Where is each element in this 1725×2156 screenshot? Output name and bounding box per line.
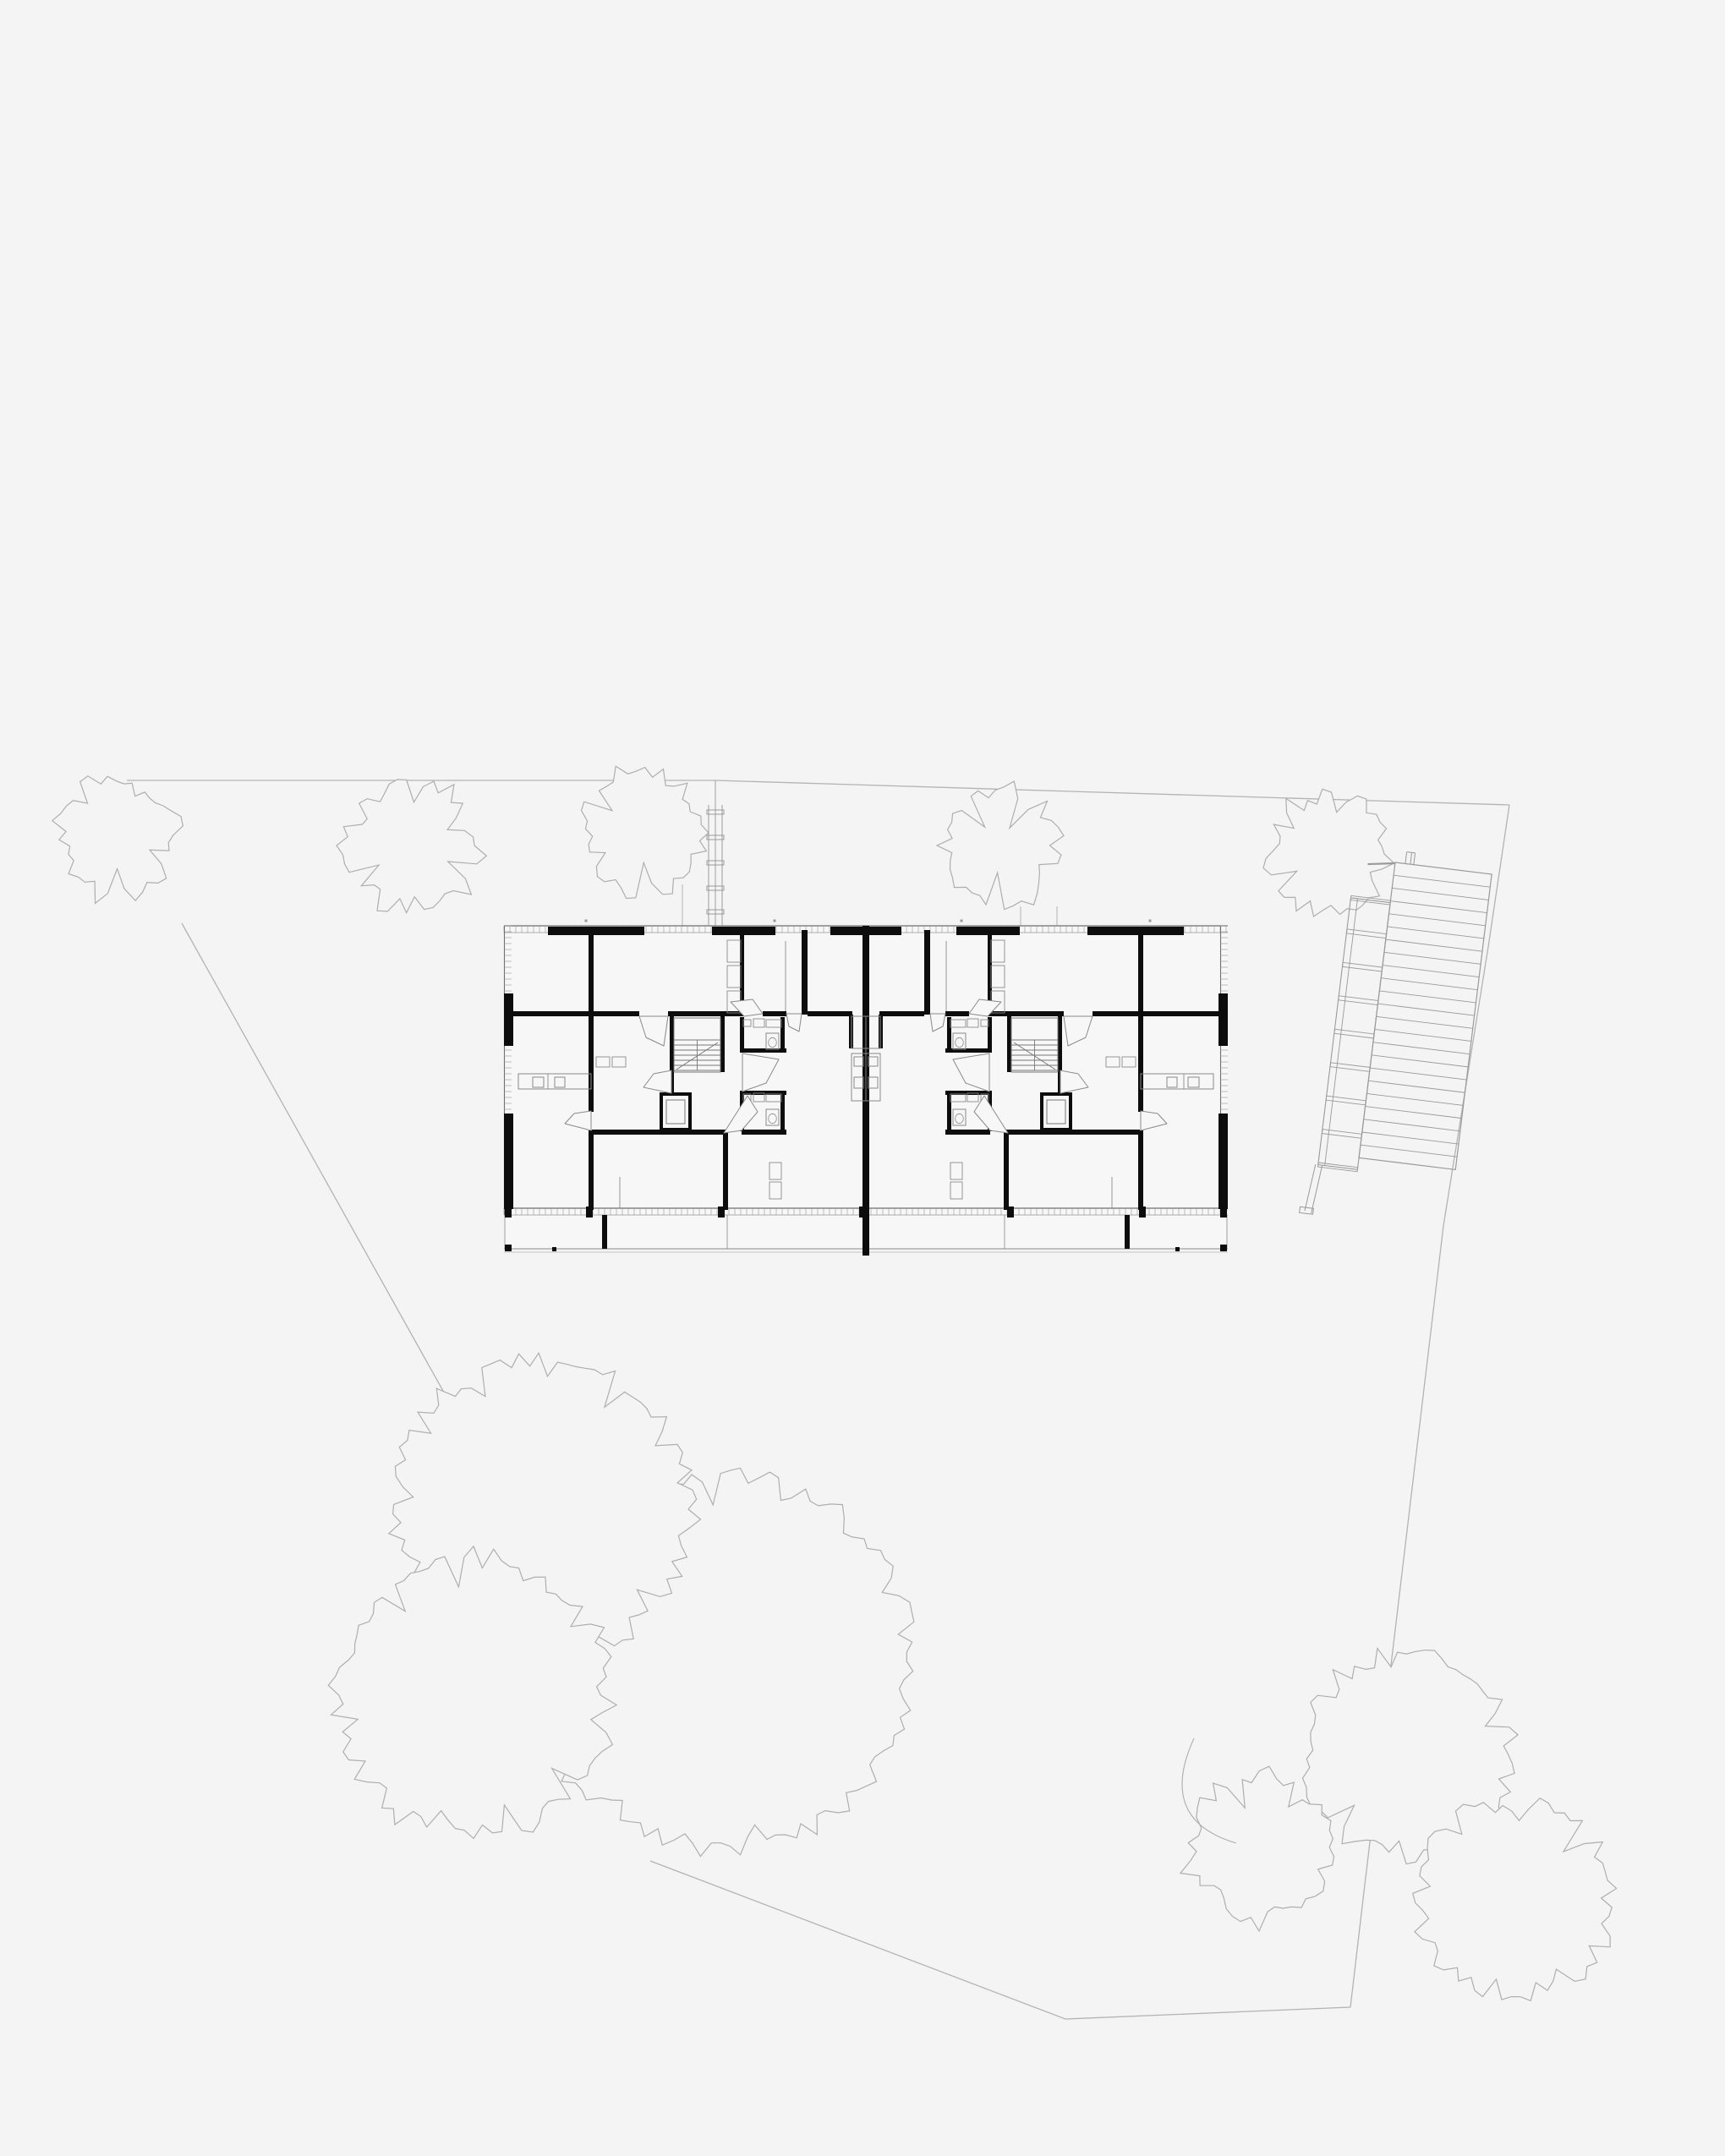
tree-crown — [1263, 789, 1394, 917]
balcony-divider — [602, 1215, 607, 1249]
tree-crown — [52, 776, 183, 904]
connector-line — [1405, 852, 1407, 864]
walkway-rung — [1334, 1029, 1374, 1038]
tree-crown — [937, 781, 1064, 909]
tree-crown — [582, 766, 709, 898]
walkway-rung — [1343, 962, 1383, 971]
property-line — [182, 923, 452, 1406]
exterior-wall — [504, 993, 513, 1046]
walkway-rail — [1325, 899, 1358, 1166]
connector-line — [1414, 853, 1416, 865]
walkway-rung — [1330, 1063, 1370, 1072]
facade-dot — [585, 920, 588, 922]
facade-dot — [1149, 920, 1152, 922]
balcony-divider — [1125, 1215, 1130, 1249]
wall — [763, 1011, 786, 1016]
walkway-rung — [1346, 929, 1386, 938]
deck-slat — [1372, 1055, 1468, 1067]
wall — [988, 1011, 1064, 1016]
deck-slat — [1383, 966, 1479, 977]
drawing-page — [0, 0, 1725, 2156]
facade-pier — [548, 927, 644, 935]
deck-slat — [1394, 875, 1490, 887]
wall — [924, 930, 930, 1015]
deck-slat — [1366, 1093, 1463, 1105]
wall — [808, 1011, 852, 1016]
wall — [945, 1048, 992, 1053]
wall — [668, 1011, 744, 1016]
deck-slat — [1364, 1119, 1460, 1131]
facade-dot — [774, 920, 776, 922]
deck-slat — [1386, 939, 1482, 951]
facade-pier — [1087, 927, 1184, 935]
site-plan-drawing — [0, 0, 1725, 2156]
balcony-post-dot — [1175, 1247, 1180, 1251]
deck-slat — [1361, 1145, 1457, 1157]
deck-slat — [1375, 1029, 1471, 1041]
deck-slat — [1392, 888, 1488, 900]
walkway-rung — [1339, 996, 1378, 1005]
exterior-wall — [504, 1114, 513, 1209]
wall — [1009, 1130, 1140, 1135]
tree-crown — [337, 780, 486, 913]
facade-stub — [718, 1207, 725, 1218]
deck-slat — [1370, 1068, 1466, 1080]
balcony-post — [505, 1245, 512, 1251]
wall — [802, 930, 808, 1015]
exterior-wall — [1218, 1114, 1228, 1209]
deck-slat — [1384, 952, 1481, 964]
balcony-post-dot — [552, 1247, 556, 1251]
facade-stub — [586, 1207, 593, 1218]
wall — [945, 1130, 990, 1135]
deck-slat — [1381, 978, 1477, 990]
walkway-outline — [1318, 898, 1390, 1169]
facade-stub — [505, 1207, 512, 1218]
wall — [945, 1011, 969, 1016]
wall — [879, 1011, 924, 1016]
walkway-tail — [1312, 1164, 1322, 1213]
wall — [1138, 1130, 1143, 1210]
walkway-rung — [1326, 1096, 1366, 1105]
facade-pier — [956, 927, 1020, 935]
deck-slat — [1366, 1107, 1462, 1119]
wall — [1092, 1011, 1224, 1016]
deck-slat — [1390, 901, 1487, 913]
deck-slat — [1377, 1004, 1474, 1015]
deck-slat — [1373, 1042, 1470, 1054]
facade-dot — [961, 920, 963, 922]
deck-slat — [1377, 1016, 1473, 1028]
wall — [592, 1130, 723, 1135]
facade-stub — [1139, 1207, 1146, 1218]
facade-stub — [1007, 1207, 1014, 1218]
facade-stub — [1220, 1207, 1227, 1218]
deck-slat — [1362, 1132, 1459, 1144]
connector-line — [1410, 852, 1412, 864]
wall — [1004, 1130, 1009, 1210]
wall — [720, 1015, 725, 1072]
connector-line — [1407, 852, 1416, 853]
deck-slat — [1388, 927, 1484, 938]
balcony-post — [1220, 1245, 1227, 1251]
wall — [1007, 1015, 1011, 1072]
walkway-tail — [1305, 1163, 1316, 1211]
wall — [507, 1011, 639, 1016]
deck-slat — [1368, 1081, 1465, 1092]
deck-slat — [1379, 991, 1476, 1003]
deck-slat — [1389, 914, 1486, 926]
walkway-rung — [1322, 1130, 1361, 1139]
facade-pier — [712, 927, 775, 935]
deck-outline — [1359, 862, 1492, 1169]
wall — [723, 1130, 728, 1210]
wall — [742, 1130, 786, 1135]
exterior-wall — [1218, 993, 1228, 1046]
wall — [740, 1048, 786, 1053]
wall — [589, 1130, 594, 1210]
property-line — [127, 780, 1509, 805]
